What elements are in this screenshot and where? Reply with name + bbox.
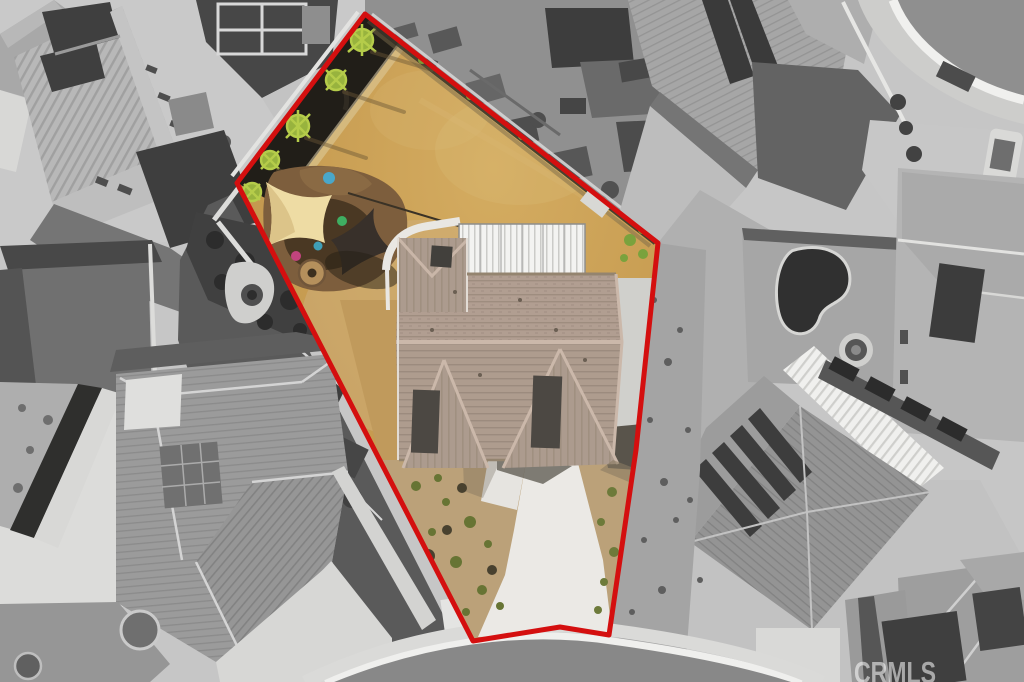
svg-text:CRMLS: CRMLS [854,655,936,682]
